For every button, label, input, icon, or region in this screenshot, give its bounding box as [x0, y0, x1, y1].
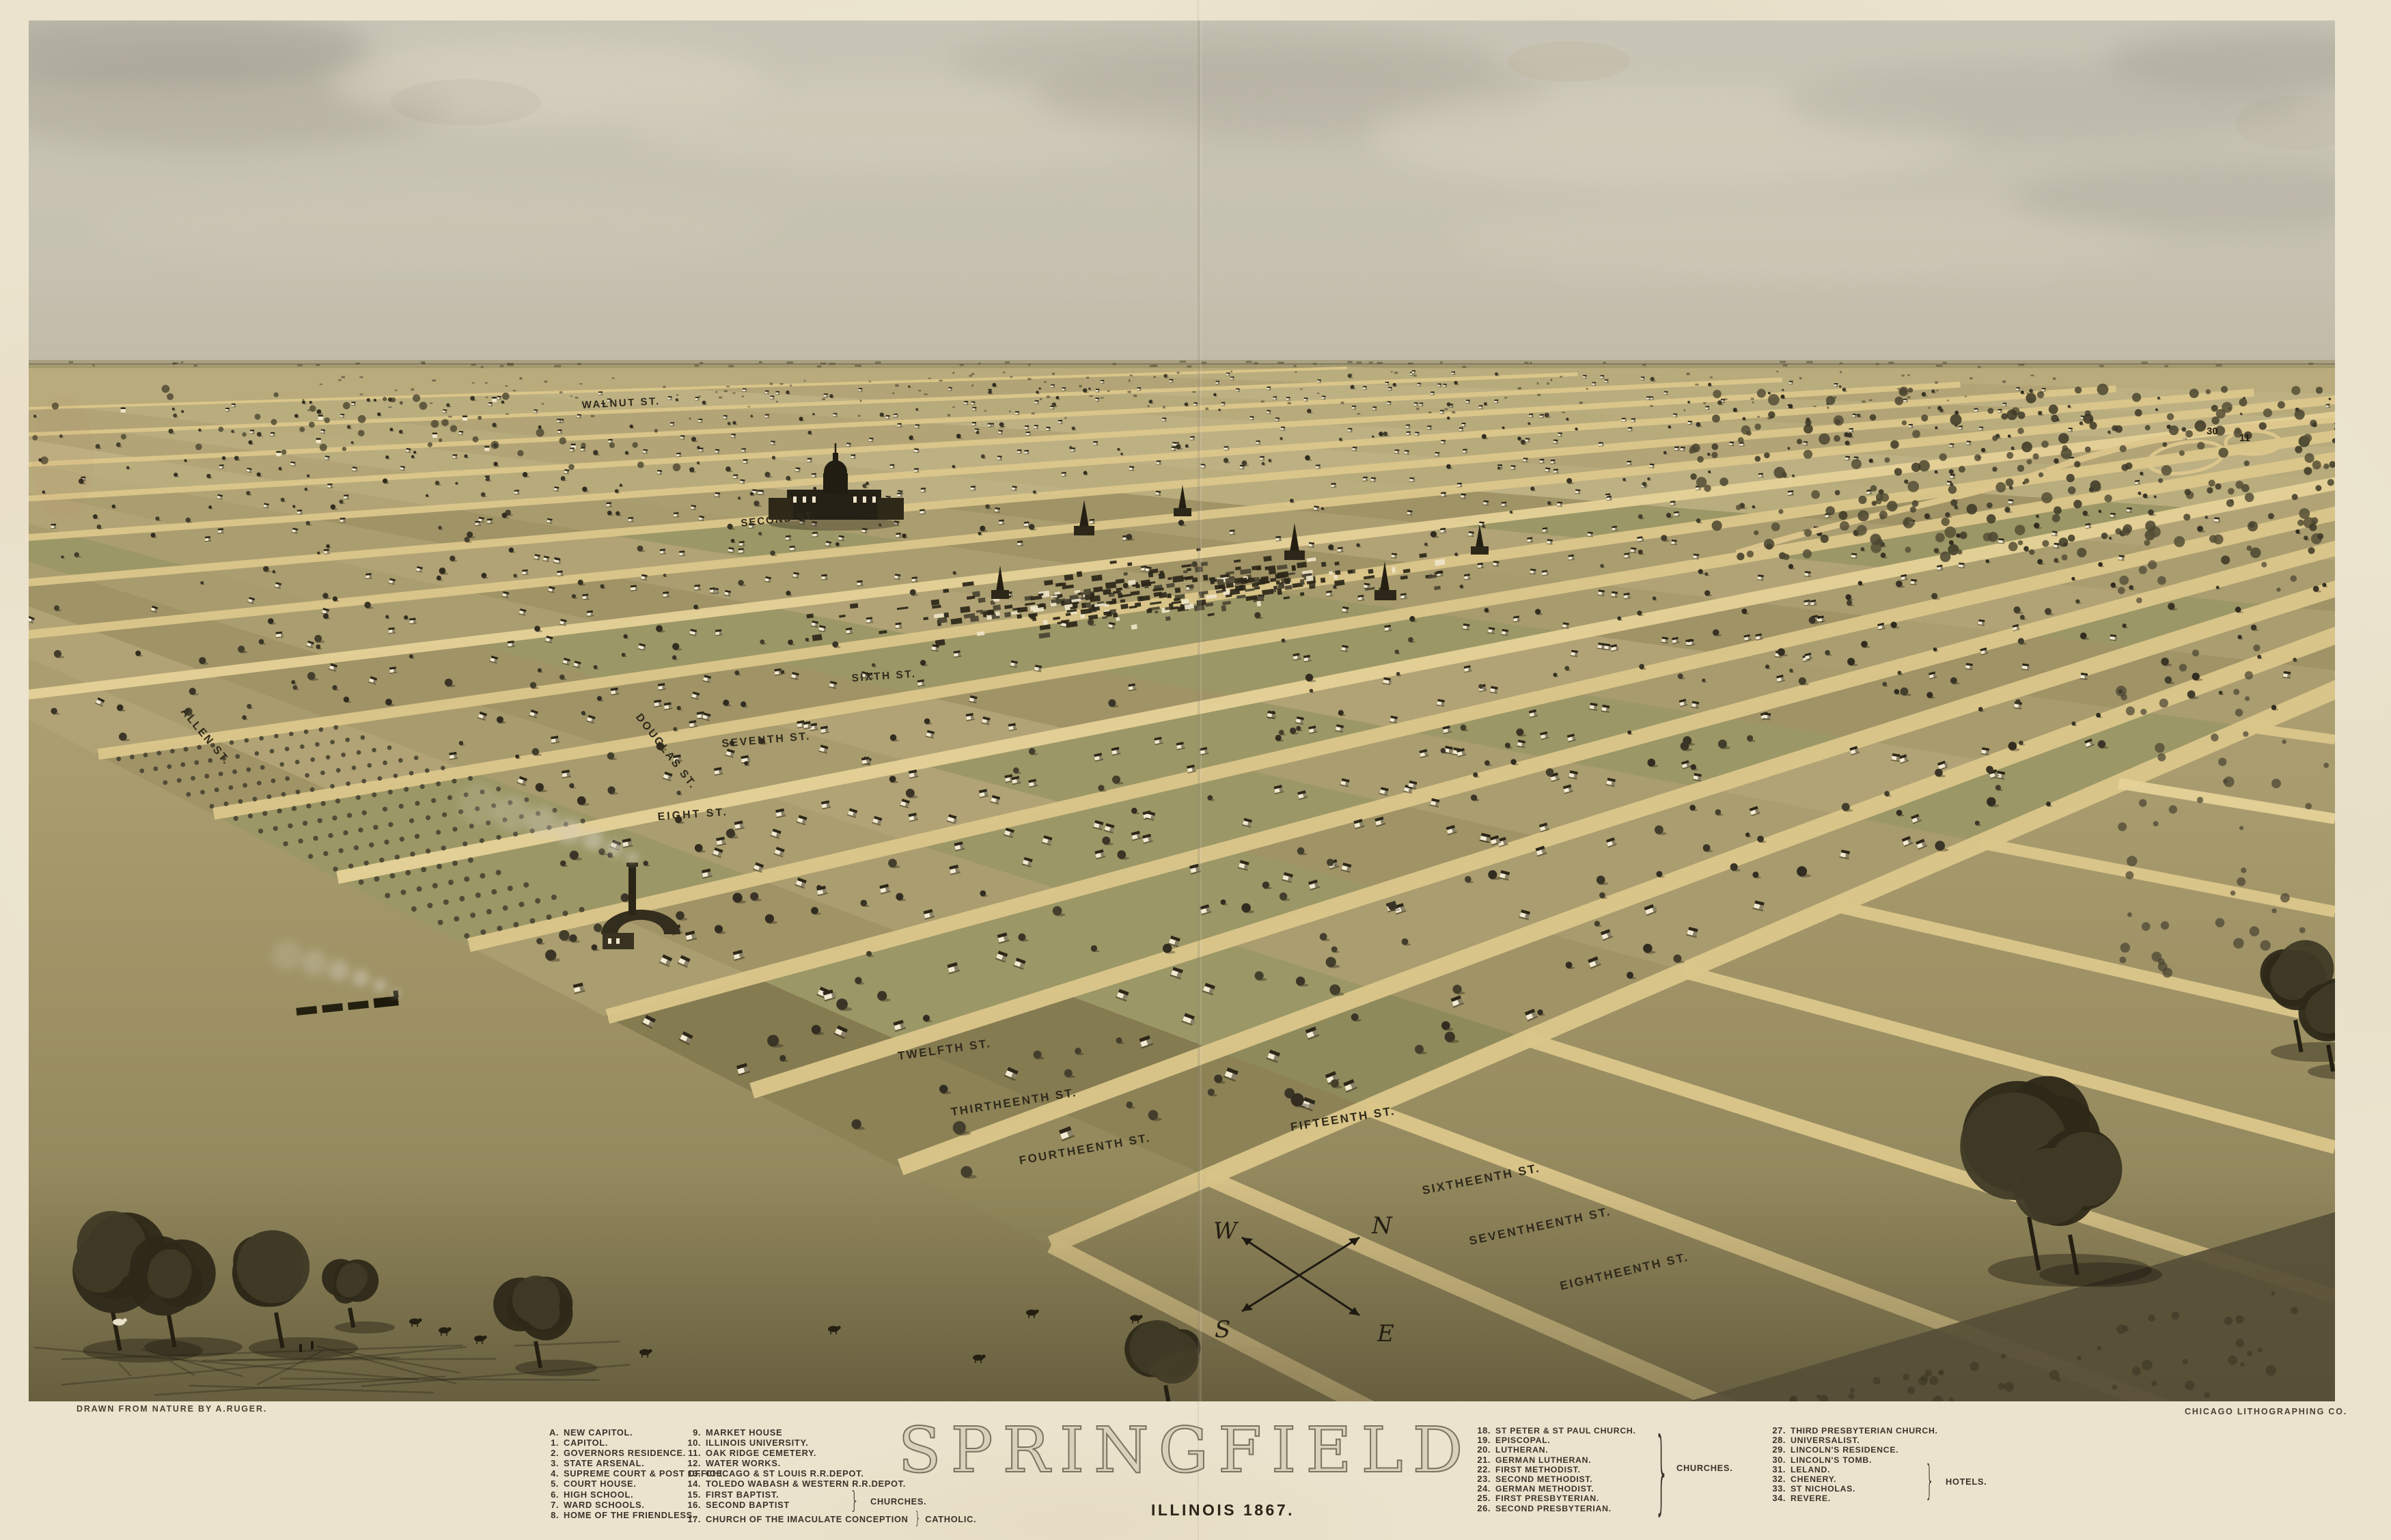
legend-item-label: WATER WORKS. [706, 1458, 781, 1468]
legend-group-label-churches-small: CHURCHES. [870, 1496, 926, 1507]
legend-group-label-catholic: CATHOLIC. [925, 1514, 976, 1524]
compass-letter-n: N [1371, 1212, 1393, 1240]
compass-letter-e: E [1377, 1320, 1394, 1347]
chimney-cap [626, 863, 638, 867]
legend-item-number: 9. [680, 1427, 706, 1438]
legend-item: 18. ST PETER & ST PAUL CHURCH. [1470, 1425, 1636, 1435]
legend-item: 9. MARKET HOUSE [680, 1427, 906, 1438]
legend-item-number: 12. [680, 1458, 706, 1468]
legend-item-label: SECOND PRESBYTERIAN. [1495, 1504, 1612, 1513]
legend-item-label: STATE ARSENAL. [564, 1458, 644, 1468]
brace: } [1925, 1461, 1934, 1502]
legend-item-number: 29. [1765, 1444, 1791, 1455]
legend-item: 23. SECOND METHODIST. [1470, 1474, 1636, 1483]
legend-item-number: 10. [680, 1438, 706, 1448]
poi-marker-30: 30 [2207, 425, 2218, 437]
legend-item: 25. FIRST PRESBYTERIAN. [1470, 1493, 1636, 1502]
legend-item-label: GERMAN METHODIST. [1495, 1484, 1594, 1494]
legend-item: 20. LUTHERAN. [1470, 1444, 1636, 1454]
map-subtitle: ILLINOIS 1867. [1107, 1501, 1339, 1520]
legend-item-label: WARD SCHOOLS. [564, 1500, 645, 1510]
legend-item-number: 1. [538, 1438, 564, 1448]
legend-item-label: LELAND. [1791, 1465, 1830, 1474]
legend-item-number: 31. [1765, 1464, 1791, 1474]
legend-item: 31. LELAND. [1765, 1464, 1938, 1474]
legend-item: 12. WATER WORKS. [680, 1458, 906, 1468]
legend-item-label: ST NICHOLAS. [1791, 1484, 1855, 1494]
legend-item: 21. GERMAN LUTHERAN. [1470, 1455, 1636, 1464]
poi-marker-11: 11 [2239, 432, 2250, 444]
map-sheet: WALNUT ST. SECOND ST. SIXTH ST. SEVENTH … [0, 0, 2391, 1540]
legend-item-label: TOLEDO WABASH & WESTERN R.R.DEPOT. [706, 1479, 906, 1489]
legend-item-label: FIRST METHODIST. [1495, 1465, 1581, 1474]
legend-item-number: 6. [538, 1489, 564, 1500]
legend-item-label: SECOND METHODIST. [1495, 1474, 1592, 1484]
legend-item-label: ST PETER & ST PAUL CHURCH. [1495, 1426, 1636, 1436]
legend-item-label: GOVERNORS RESIDENCE. [564, 1448, 686, 1458]
legend-item: 13. CHICAGO & ST LOUIS R.R.DEPOT. [680, 1468, 906, 1479]
legend-item-number: 2. [538, 1448, 564, 1458]
legend-item: 22. FIRST METHODIST. [1470, 1464, 1636, 1474]
legend-item-label: CHURCH OF THE IMACULATE CONCEPTION [706, 1514, 909, 1524]
legend-item: 33. ST NICHOLAS. [1765, 1483, 1938, 1493]
legend-group-label-churches: CHURCHES. [1676, 1463, 1732, 1473]
legend-item-label: SECOND BAPTIST [706, 1500, 790, 1510]
compass-letter-w: W [1213, 1218, 1239, 1245]
legend-item-label: UNIVERSALIST. [1791, 1436, 1860, 1445]
brace: } [1655, 1425, 1669, 1516]
legend-item-label: LINCOLN'S TOMB. [1791, 1455, 1872, 1465]
legend-item-label: MARKET HOUSE [706, 1427, 782, 1438]
legend-item-number: 11. [680, 1448, 706, 1458]
legend-item-number: A. [538, 1427, 564, 1438]
legend-item-label: HOME OF THE FRIENDLESS. [564, 1510, 695, 1520]
legend-item-number: 30. [1765, 1455, 1791, 1465]
map-print: WALNUT ST. SECOND ST. SIXTH ST. SEVENTH … [29, 20, 2335, 1401]
legend-item-label: ILLINOIS UNIVERSITY. [706, 1438, 809, 1448]
legend-item-label: LUTHERAN. [1495, 1445, 1548, 1455]
legend-item-label: CHICAGO & ST LOUIS R.R.DEPOT. [706, 1468, 863, 1479]
legend-item-number: 26. [1470, 1503, 1495, 1513]
legend-item-17: 17. CHURCH OF THE IMACULATE CONCEPTION }… [680, 1509, 976, 1526]
legend-item-label: LINCOLN'S RESIDENCE. [1791, 1445, 1898, 1455]
factory-chimney [628, 866, 636, 915]
legend-item-number: 14. [680, 1479, 706, 1489]
legend-item-number: 15. [680, 1489, 706, 1500]
legend-item-label: FIRST PRESBYTERIAN. [1495, 1494, 1599, 1503]
legend-item-label: CAPITOL. [564, 1438, 608, 1448]
compass-letter-s: S [1215, 1316, 1230, 1343]
legend-item-label: REVERE. [1791, 1494, 1831, 1503]
legend-item: 30. LINCOLN'S TOMB. [1765, 1455, 1938, 1464]
legend-item-number: 32. [1765, 1474, 1791, 1484]
legend-group-label-hotels: HOTELS. [1946, 1476, 1987, 1487]
legend-item-label: EPISCOPAL. [1495, 1436, 1551, 1445]
brace: } [914, 1507, 921, 1528]
legend-item-label: CHENERY. [1791, 1474, 1836, 1484]
legend-item-number: 34. [1765, 1493, 1791, 1503]
legend-item-number: 8. [538, 1510, 564, 1520]
legend-item-label: GERMAN LUTHERAN. [1495, 1455, 1591, 1465]
legend-item-number: 16. [680, 1500, 706, 1510]
legend-item: 29. LINCOLN'S RESIDENCE. [1765, 1444, 1938, 1454]
legend-item-label: HIGH SCHOOL. [564, 1489, 633, 1500]
legend-item-number: 5. [538, 1479, 564, 1489]
legend-item-number: 33. [1765, 1483, 1791, 1494]
legend-item: 28. UNIVERSALIST. [1765, 1435, 1938, 1444]
legend-item-number: 28. [1765, 1435, 1791, 1445]
legend-item: 10. ILLINOIS UNIVERSITY. [680, 1438, 906, 1448]
legend-item-number: 4. [538, 1468, 564, 1479]
legend-column-3: 18. ST PETER & ST PAUL CHURCH. 19. EPISC… [1470, 1425, 1636, 1513]
legend-item-label: FIRST BAPTIST. [706, 1489, 779, 1500]
legend-item-number: 13. [680, 1468, 706, 1479]
legend-item: 11. OAK RIDGE CEMETERY. [680, 1448, 906, 1458]
legend-item-number: 3. [538, 1458, 564, 1468]
legend-item-number: 25. [1470, 1493, 1495, 1503]
legend-item-label: COURT HOUSE. [564, 1479, 637, 1489]
credit-artist: DRAWN FROM NATURE BY A.RUGER. [77, 1404, 267, 1414]
legend-item: 19. EPISCOPAL. [1470, 1435, 1636, 1444]
legend-item: 24. GERMAN METHODIST. [1470, 1483, 1636, 1493]
legend-item: 34. REVERE. [1765, 1493, 1938, 1502]
legend-item-label: OAK RIDGE CEMETERY. [706, 1448, 816, 1458]
legend-item-label: NEW CAPITOL. [564, 1427, 633, 1438]
legend-item-label: THIRD PRESBYTERIAN CHURCH. [1791, 1426, 1938, 1436]
legend-item: 27. THIRD PRESBYTERIAN CHURCH. [1765, 1425, 1938, 1435]
credit-lithographer: CHICAGO LITHOGRAPHING CO. [2185, 1407, 2347, 1416]
map-title: SPRINGFIELD [885, 1414, 1486, 1487]
legend-item: 32. CHENERY. [1765, 1474, 1938, 1483]
legend-item-number: 7. [538, 1500, 564, 1510]
legend-item: 26. SECOND PRESBYTERIAN. [1470, 1503, 1636, 1513]
legend-item: 14. TOLEDO WABASH & WESTERN R.R.DEPOT. [680, 1479, 906, 1489]
legend-item-number: 17. [680, 1514, 706, 1524]
legend-column-4: 27. THIRD PRESBYTERIAN CHURCH. 28. UNIVE… [1765, 1425, 1938, 1503]
legend-item-number: 27. [1765, 1425, 1791, 1436]
